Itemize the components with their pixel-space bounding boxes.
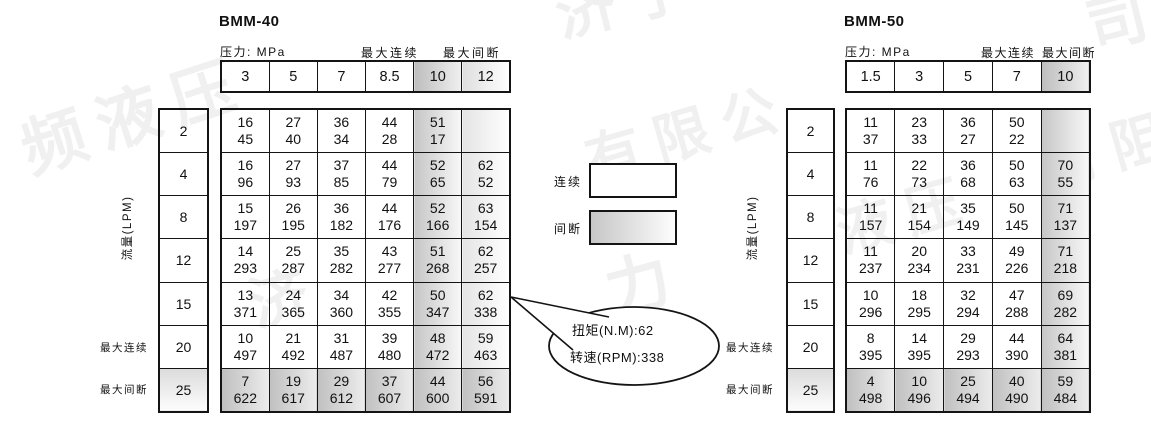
- speed-value: 480: [366, 347, 413, 364]
- speed-value: 176: [366, 217, 413, 234]
- torque-speed-cell: 34360: [317, 282, 365, 325]
- speed-value: 154: [462, 217, 509, 234]
- torque-speed-cell: 2333: [895, 109, 944, 153]
- torque-speed-cell: 2273: [895, 153, 944, 196]
- pressure-header-cell: 10: [414, 61, 462, 92]
- torque-value: 23: [895, 114, 943, 131]
- torque-value: 71: [1042, 243, 1089, 260]
- pressure-header-cell: 1.5: [846, 61, 895, 92]
- speed-value: 484: [1042, 390, 1089, 407]
- row-label-max-intermittent: 最大间断: [100, 382, 148, 397]
- table-title-bmm40: BMM-40: [219, 13, 280, 30]
- speed-value: 492: [270, 347, 317, 364]
- torque-value: 26: [270, 200, 317, 217]
- torque-speed-cell: 3634: [317, 109, 365, 153]
- catalog-page: 频液压济宁有限公力济液压有阻司 BMM-40 压力: MPa 最大连续 最大间断…: [0, 0, 1151, 441]
- grid: 1645274036344428511716962793378544795265…: [220, 108, 511, 413]
- max-continuous-caption: 最大连续: [361, 44, 419, 61]
- torque-value: 43: [366, 243, 413, 260]
- row-label-max-intermittent: 最大间断: [726, 382, 774, 397]
- torque-value: 52: [414, 157, 461, 174]
- torque-speed-cell: 25494: [944, 368, 993, 412]
- torque-speed-cell: 44176: [365, 196, 413, 239]
- torque-speed-cell: 2793: [269, 153, 317, 196]
- torque-value: 37: [366, 373, 413, 390]
- speed-value: 17: [414, 131, 461, 148]
- speed-value: 487: [318, 347, 365, 364]
- torque-speed-cell: 19617: [269, 368, 317, 412]
- flow-value-cell: 4: [787, 153, 834, 196]
- torque-speed-cell: 3627: [944, 109, 993, 153]
- torque-value: 11: [847, 114, 894, 131]
- torque-speed-cell: 14293: [221, 239, 269, 282]
- torque-value: 52: [414, 200, 461, 217]
- torque-value: 59: [1042, 373, 1089, 390]
- torque-speed-cell: 1176: [846, 153, 895, 196]
- speed-value: 22: [993, 131, 1041, 148]
- flow-value-cell: 15: [787, 282, 834, 325]
- torque-value: 62: [462, 157, 509, 174]
- speed-value: 365: [270, 304, 317, 321]
- row-label-max-continuous: 最大连续: [726, 340, 774, 355]
- torque-value: 8: [847, 330, 894, 347]
- flow-value-cell: 20: [159, 325, 208, 368]
- speed-value: 137: [1042, 217, 1089, 234]
- torque-speed-cell: 1645: [221, 109, 269, 153]
- speed-value: 607: [366, 390, 413, 407]
- torque-speed-cell: 59463: [462, 325, 510, 368]
- torque-speed-cell: 29612: [317, 368, 365, 412]
- speed-value: 65: [414, 174, 461, 191]
- speed-value: 600: [414, 390, 461, 407]
- speed-value: 27: [944, 131, 992, 148]
- torque-value: 71: [1042, 200, 1089, 217]
- torque-speed-cell: 56591: [462, 368, 510, 412]
- callout-speed-text: 转速(RPM):338: [570, 347, 664, 366]
- torque-speed-cell: 50347: [414, 282, 462, 325]
- torque-value: 36: [944, 114, 992, 131]
- speed-value: 195: [270, 217, 317, 234]
- torque-value: 16: [222, 114, 269, 131]
- speed-value: 34: [318, 131, 365, 148]
- speed-value: 371: [222, 304, 269, 321]
- torque-speed-cell: 20234: [895, 239, 944, 282]
- flow-value-cell: 2: [787, 109, 834, 153]
- torque-speed-cell: 39480: [365, 325, 413, 368]
- torque-value: 42: [366, 287, 413, 304]
- speed-value: 294: [944, 304, 992, 321]
- speed-value: 347: [414, 304, 461, 321]
- legend-intermittent-label: 间断: [554, 220, 582, 237]
- flow-value-cell: 15: [159, 282, 208, 325]
- torque-speed-cell: 14395: [895, 325, 944, 368]
- row-label-max-continuous: 最大连续: [100, 340, 148, 355]
- torque-speed-cell: 5063: [992, 153, 1041, 196]
- grid: 24812152025: [158, 108, 209, 413]
- speed-value: 287: [270, 260, 317, 277]
- max-intermittent-caption: 最大间断: [1042, 44, 1096, 61]
- pressure-header-cell: 5: [269, 61, 317, 92]
- torque-speed-cell: 64381: [1041, 325, 1090, 368]
- torque-speed-cell: 11237: [846, 239, 895, 282]
- torque-value: 27: [270, 114, 317, 131]
- torque-value: 50: [993, 114, 1041, 131]
- torque-speed-cell: 32294: [944, 282, 993, 325]
- torque-speed-cell: 24365: [269, 282, 317, 325]
- speed-value: 234: [895, 260, 943, 277]
- torque-value: 47: [993, 287, 1041, 304]
- table-title-bmm50: BMM-50: [844, 13, 905, 30]
- torque-speed-cell: 29293: [944, 325, 993, 368]
- callout-torque-text: 扭矩(N.M):62: [572, 320, 654, 339]
- torque-speed-cell: 50145: [992, 196, 1041, 239]
- pressure-header-cell: 3: [221, 61, 269, 92]
- flow-axis-label: 流量(LPM): [119, 183, 135, 273]
- torque-speed-cell: 47288: [992, 282, 1041, 325]
- speed-value: 494: [944, 390, 992, 407]
- speed-value: 381: [1042, 347, 1089, 364]
- torque-speed-cell: 5265: [414, 153, 462, 196]
- torque-speed-cell: 3668: [944, 153, 993, 196]
- torque-speed-cell: 71137: [1041, 196, 1090, 239]
- torque-value: 11: [847, 200, 894, 217]
- torque-value: 29: [318, 373, 365, 390]
- torque-speed-cell: 63154: [462, 196, 510, 239]
- legend-continuous-label: 连续: [554, 173, 582, 190]
- torque-value: 32: [944, 287, 992, 304]
- pressure-header-cell: 10: [1041, 61, 1090, 92]
- speed-value: 237: [847, 260, 894, 277]
- speed-value: 277: [366, 260, 413, 277]
- pressure-header-cell: 12: [462, 61, 510, 92]
- speed-value: 33: [895, 131, 943, 148]
- speed-value: 149: [944, 217, 992, 234]
- torque-speed-cell: 2740: [269, 109, 317, 153]
- speed-value: 282: [1042, 304, 1089, 321]
- torque-speed-cell: 69282: [1041, 282, 1090, 325]
- torque-value: 44: [366, 157, 413, 174]
- pressure-header-cell: 3: [895, 61, 944, 92]
- torque-speed-cell: 4498: [846, 368, 895, 412]
- torque-speed-cell: 7622: [221, 368, 269, 412]
- torque-value: 62: [462, 243, 509, 260]
- speed-value: 395: [895, 347, 943, 364]
- speed-value: 296: [847, 304, 894, 321]
- speed-value: 617: [270, 390, 317, 407]
- torque-speed-cell: 21154: [895, 196, 944, 239]
- torque-value: 14: [895, 330, 943, 347]
- torque-speed-cell: 18295: [895, 282, 944, 325]
- torque-speed-cell: 35149: [944, 196, 993, 239]
- torque-speed-cell: 5117: [414, 109, 462, 153]
- speed-value: 182: [318, 217, 365, 234]
- torque-value: 16: [222, 157, 269, 174]
- speed-value: 612: [318, 390, 365, 407]
- speed-value: 37: [847, 131, 894, 148]
- flow-value-cell: 2: [159, 109, 208, 153]
- torque-value: 19: [270, 373, 317, 390]
- torque-speed-cell: 49226: [992, 239, 1041, 282]
- torque-speed-cell: 1137: [846, 109, 895, 153]
- torque-value: 21: [270, 330, 317, 347]
- torque-speed-cell: 10497: [221, 325, 269, 368]
- torque-speed-cell: 37607: [365, 368, 413, 412]
- legend-intermittent-swatch: [589, 210, 677, 245]
- torque-value: 51: [414, 114, 461, 131]
- torque-speed-cell: 62257: [462, 239, 510, 282]
- torque-value: 4: [847, 373, 894, 390]
- torque-value: 10: [895, 373, 943, 390]
- torque-value: 62: [462, 287, 509, 304]
- flow-value-cell: 25: [787, 368, 834, 412]
- torque-value: 49: [993, 243, 1041, 260]
- torque-value: 39: [366, 330, 413, 347]
- torque-value: 59: [462, 330, 509, 347]
- torque-value: 7: [222, 373, 269, 390]
- torque-speed-cell: 40490: [992, 368, 1041, 412]
- torque-speed-cell: 43277: [365, 239, 413, 282]
- speed-value: 395: [847, 347, 894, 364]
- speed-value: 145: [993, 217, 1041, 234]
- torque-value: 33: [944, 243, 992, 260]
- pressure-header-row: 1.535710: [845, 60, 1091, 93]
- torque-value: 21: [895, 200, 943, 217]
- torque-value: 50: [993, 200, 1041, 217]
- torque-speed-cell: 6252: [462, 153, 510, 196]
- torque-value: 11: [847, 157, 894, 174]
- torque-value: 36: [318, 114, 365, 131]
- pressure-header-cell: 7: [317, 61, 365, 92]
- speed-value: 360: [318, 304, 365, 321]
- flow-value-cell: 4: [159, 153, 208, 196]
- speed-value: 257: [462, 260, 509, 277]
- torque-value: 50: [414, 287, 461, 304]
- torque-speed-cell: 21492: [269, 325, 317, 368]
- torque-value: 44: [366, 114, 413, 131]
- torque-value: 44: [366, 200, 413, 217]
- torque-value: 10: [222, 330, 269, 347]
- torque-speed-cell: 1696: [221, 153, 269, 196]
- torque-value: 69: [1042, 287, 1089, 304]
- torque-speed-cell: 59484: [1041, 368, 1090, 412]
- torque-value: 36: [944, 157, 992, 174]
- torque-speed-cell: 48472: [414, 325, 462, 368]
- speed-value: 497: [222, 347, 269, 364]
- torque-speed-cell: 42355: [365, 282, 413, 325]
- torque-speed-cell: 5022: [992, 109, 1041, 153]
- speed-value: 282: [318, 260, 365, 277]
- torque-speed-cell: 3785: [317, 153, 365, 196]
- torque-speed-cell: 33231: [944, 239, 993, 282]
- performance-table-bmm40: 1645274036344428511716962793378544795265…: [220, 108, 511, 413]
- speed-value: 218: [1042, 260, 1089, 277]
- speed-value: 338: [462, 304, 509, 321]
- speed-value: 52: [462, 174, 509, 191]
- speed-value: 472: [414, 347, 461, 364]
- pressure-header-row: 3578.51012: [220, 60, 511, 93]
- speed-value: 390: [993, 347, 1041, 364]
- torque-value: 20: [895, 243, 943, 260]
- flow-value-cell: 20: [787, 325, 834, 368]
- speed-value: 293: [944, 347, 992, 364]
- torque-value: 40: [993, 373, 1041, 390]
- max-continuous-caption: 最大连续: [981, 44, 1035, 61]
- max-intermittent-caption: 最大间断: [443, 44, 501, 61]
- pressure-header-cell: 5: [944, 61, 993, 92]
- speed-value: 63: [993, 174, 1041, 191]
- speed-value: 293: [222, 260, 269, 277]
- torque-speed-cell: 10496: [895, 368, 944, 412]
- torque-speed-cell: 8395: [846, 325, 895, 368]
- speed-value: 622: [222, 390, 269, 407]
- speed-value: 93: [270, 174, 317, 191]
- pressure-header-cell: 8.5: [365, 61, 413, 92]
- torque-value: 70: [1042, 157, 1089, 174]
- speed-value: 157: [847, 217, 894, 234]
- torque-speed-cell: 4479: [365, 153, 413, 196]
- flow-axis-label: 流量(LPM): [744, 183, 760, 273]
- torque-speed-cell: 51268: [414, 239, 462, 282]
- torque-value: 37: [318, 157, 365, 174]
- torque-value: 44: [414, 373, 461, 390]
- torque-value: 13: [222, 287, 269, 304]
- torque-value: 14: [222, 243, 269, 260]
- torque-speed-cell: [462, 109, 510, 153]
- speed-value: 76: [847, 174, 894, 191]
- torque-value: 63: [462, 200, 509, 217]
- torque-value: 44: [993, 330, 1041, 347]
- torque-speed-cell: 44600: [414, 368, 462, 412]
- watermark-text: 济宁: [545, 0, 710, 54]
- torque-speed-cell: 11157: [846, 196, 895, 239]
- speed-value: 68: [944, 174, 992, 191]
- torque-speed-cell: 25287: [269, 239, 317, 282]
- speed-value: 166: [414, 217, 461, 234]
- torque-speed-cell: 15197: [221, 196, 269, 239]
- torque-value: 34: [318, 287, 365, 304]
- speed-value: 496: [895, 390, 943, 407]
- torque-value: 10: [847, 287, 894, 304]
- torque-speed-cell: 36182: [317, 196, 365, 239]
- torque-speed-cell: 7055: [1041, 153, 1090, 196]
- torque-speed-cell: 10296: [846, 282, 895, 325]
- torque-speed-cell: 44390: [992, 325, 1041, 368]
- speed-value: 28: [366, 131, 413, 148]
- torque-value: 50: [993, 157, 1041, 174]
- torque-value: 56: [462, 373, 509, 390]
- torque-value: 25: [270, 243, 317, 260]
- speed-value: 45: [222, 131, 269, 148]
- torque-value: 35: [318, 243, 365, 260]
- speed-value: 288: [993, 304, 1041, 321]
- pressure-unit-caption: 压力: MPa: [220, 43, 286, 60]
- pressure-header-cell: 7: [992, 61, 1041, 92]
- speed-value: 79: [366, 174, 413, 191]
- torque-speed-cell: [1041, 109, 1090, 153]
- torque-speed-cell: 4428: [365, 109, 413, 153]
- speed-value: 85: [318, 174, 365, 191]
- speed-value: 55: [1042, 174, 1089, 191]
- speed-value: 498: [847, 390, 894, 407]
- flow-value-cell: 12: [159, 239, 208, 282]
- grid: 3578.51012: [220, 60, 511, 93]
- torque-speed-cell: 62338: [462, 282, 510, 325]
- torque-value: 36: [318, 200, 365, 217]
- torque-value: 48: [414, 330, 461, 347]
- torque-value: 29: [944, 330, 992, 347]
- torque-value: 64: [1042, 330, 1089, 347]
- flow-value-cell: 25: [159, 368, 208, 412]
- grid: 24812152025: [786, 108, 835, 413]
- speed-value: 355: [366, 304, 413, 321]
- legend-continuous-swatch: [589, 163, 677, 198]
- speed-value: 73: [895, 174, 943, 191]
- torque-value: 15: [222, 200, 269, 217]
- speed-value: 295: [895, 304, 943, 321]
- flow-value-cell: 8: [159, 196, 208, 239]
- torque-speed-cell: 71218: [1041, 239, 1090, 282]
- pressure-unit-caption: 压力: MPa: [845, 43, 911, 60]
- torque-speed-cell: 52166: [414, 196, 462, 239]
- torque-value: 51: [414, 243, 461, 260]
- torque-value: 11: [847, 243, 894, 260]
- flow-value-cell: 12: [787, 239, 834, 282]
- speed-value: 226: [993, 260, 1041, 277]
- torque-value: 25: [944, 373, 992, 390]
- speed-value: 40: [270, 131, 317, 148]
- torque-value: 24: [270, 287, 317, 304]
- torque-value: 18: [895, 287, 943, 304]
- torque-speed-cell: 31487: [317, 325, 365, 368]
- performance-table-bmm50: 1137233336275022117622733668506370551115…: [845, 108, 1091, 413]
- grid: 1137233336275022117622733668506370551115…: [845, 108, 1091, 413]
- speed-value: 96: [222, 174, 269, 191]
- flow-column: 24812152025: [158, 108, 209, 413]
- torque-value: 27: [270, 157, 317, 174]
- torque-value: 31: [318, 330, 365, 347]
- speed-value: 268: [414, 260, 461, 277]
- speed-value: 591: [462, 390, 509, 407]
- speed-value: 231: [944, 260, 992, 277]
- speed-value: 154: [895, 217, 943, 234]
- torque-value: 35: [944, 200, 992, 217]
- torque-speed-cell: 35282: [317, 239, 365, 282]
- speed-value: 197: [222, 217, 269, 234]
- speed-value: 490: [993, 390, 1041, 407]
- flow-value-cell: 8: [787, 196, 834, 239]
- speed-value: 463: [462, 347, 509, 364]
- flow-column: 24812152025: [786, 108, 835, 413]
- torque-value: 22: [895, 157, 943, 174]
- torque-speed-cell: 13371: [221, 282, 269, 325]
- grid: 1.535710: [845, 60, 1091, 93]
- torque-speed-cell: 26195: [269, 196, 317, 239]
